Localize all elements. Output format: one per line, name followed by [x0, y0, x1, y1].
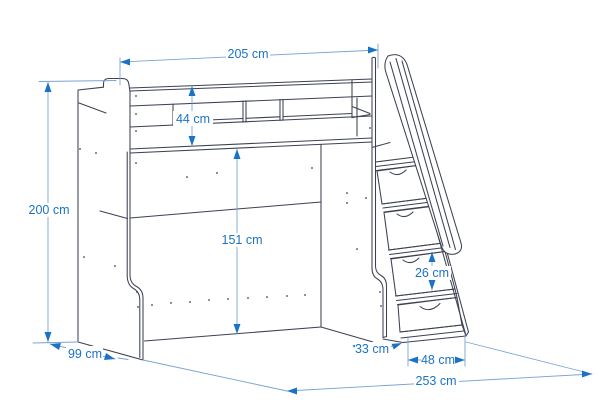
- dimension-label: 99 cm: [68, 347, 102, 361]
- left-side-panel: [78, 79, 143, 361]
- drawer-handle-cutout: [403, 258, 419, 263]
- dim-arrowhead: [189, 86, 196, 96]
- dimension-under-bed-clearance: 151 cm: [219, 149, 265, 334]
- diagram-canvas: 205 cm 44 cm 200 cm 151 cm 26 cm: [0, 0, 600, 415]
- dimension-guard-rail-height: 44 cm: [173, 86, 213, 146]
- stairs-handrail: [385, 55, 462, 255]
- dim-arrowhead: [234, 149, 241, 159]
- dimension-label: 151 cm: [222, 233, 263, 247]
- dimension-stairs-offset: 33 cm: [352, 342, 402, 356]
- dim-arrowhead: [104, 353, 115, 360]
- dim-arrowhead: [189, 136, 196, 146]
- dimension-bed-depth: 99 cm: [50, 343, 128, 361]
- drawer-handle-cutout: [390, 170, 406, 175]
- drawer-handle-cutout: [420, 304, 440, 310]
- dimension-label: 44 cm: [176, 112, 210, 126]
- dimension-label: 200 cm: [29, 203, 70, 217]
- dim-arrowhead: [429, 280, 436, 290]
- dim-arrowhead: [120, 59, 130, 66]
- dim-arrowhead: [408, 357, 418, 364]
- loft-bed-dimension-drawing: 205 cm 44 cm 200 cm 151 cm 26 cm: [0, 0, 600, 415]
- dim-arrowhead: [45, 82, 52, 92]
- dim-arrowhead: [368, 47, 378, 54]
- storage-stairs: [372, 57, 469, 342]
- dim-arrowhead: [45, 332, 52, 342]
- dimension-label: 253 cm: [416, 374, 457, 388]
- dim-arrowhead: [392, 343, 402, 350]
- dim-arrowhead: [455, 357, 465, 364]
- dimension-label: 48 cm: [421, 353, 455, 367]
- dimension-label: 33 cm: [355, 342, 389, 356]
- dim-arrowhead: [234, 324, 241, 334]
- dimension-bed-length: 205 cm: [120, 44, 378, 85]
- dimension-step-rise: 26 cm: [414, 252, 451, 290]
- drill-hole-dots: [79, 95, 382, 308]
- drawer-handle-cutout: [397, 212, 413, 217]
- dim-arrowhead: [50, 343, 61, 350]
- dim-arrowhead: [287, 388, 297, 395]
- dimension-label: 205 cm: [228, 47, 269, 61]
- dimension-label: 26 cm: [415, 266, 449, 280]
- bed-platform-guard-rail: [130, 79, 372, 153]
- dim-arrowhead: [582, 371, 592, 378]
